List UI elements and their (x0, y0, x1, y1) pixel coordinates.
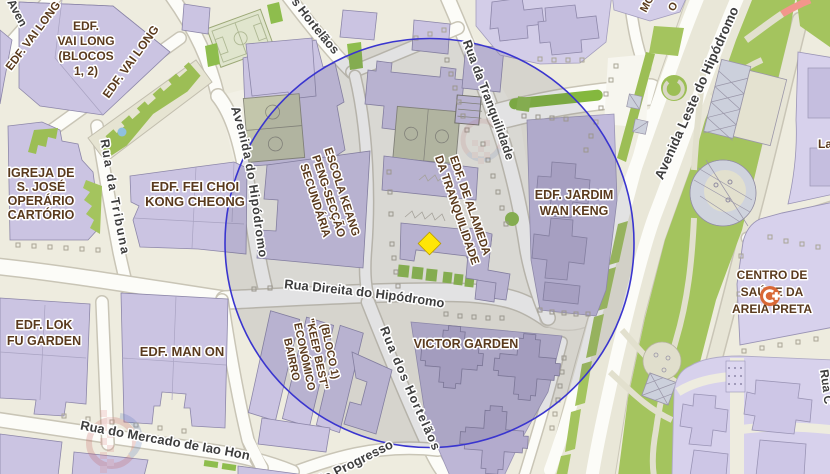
svg-text:CARTÓRIO: CARTÓRIO (8, 207, 75, 222)
svg-text:VAI LONG: VAI LONG (57, 34, 114, 48)
svg-text:WAN KENG: WAN KENG (540, 204, 609, 218)
svg-text:EDF. MAN ON: EDF. MAN ON (140, 344, 225, 359)
svg-text:La: La (818, 137, 830, 151)
svg-text:KONG CHEONG: KONG CHEONG (145, 194, 245, 209)
svg-text:EDF. LOK: EDF. LOK (16, 318, 73, 332)
svg-text:(BLOCOS: (BLOCOS (58, 49, 113, 63)
svg-text:EDF. JARDIM: EDF. JARDIM (535, 188, 613, 202)
svg-text:IGREJA DE: IGREJA DE (8, 166, 75, 180)
svg-text:CENTRO DE: CENTRO DE (737, 268, 808, 282)
svg-text:1, 2): 1, 2) (74, 64, 98, 78)
svg-text:VICTOR GARDEN: VICTOR GARDEN (414, 337, 519, 351)
svg-text:OPERÁRIO: OPERÁRIO (8, 193, 75, 208)
svg-text:EDF. FEI CHOI: EDF. FEI CHOI (151, 179, 239, 194)
svg-text:S. JOSÉ: S. JOSÉ (17, 179, 66, 194)
svg-text:EDF.: EDF. (73, 19, 99, 33)
svg-text:FU GARDEN: FU GARDEN (7, 334, 81, 348)
